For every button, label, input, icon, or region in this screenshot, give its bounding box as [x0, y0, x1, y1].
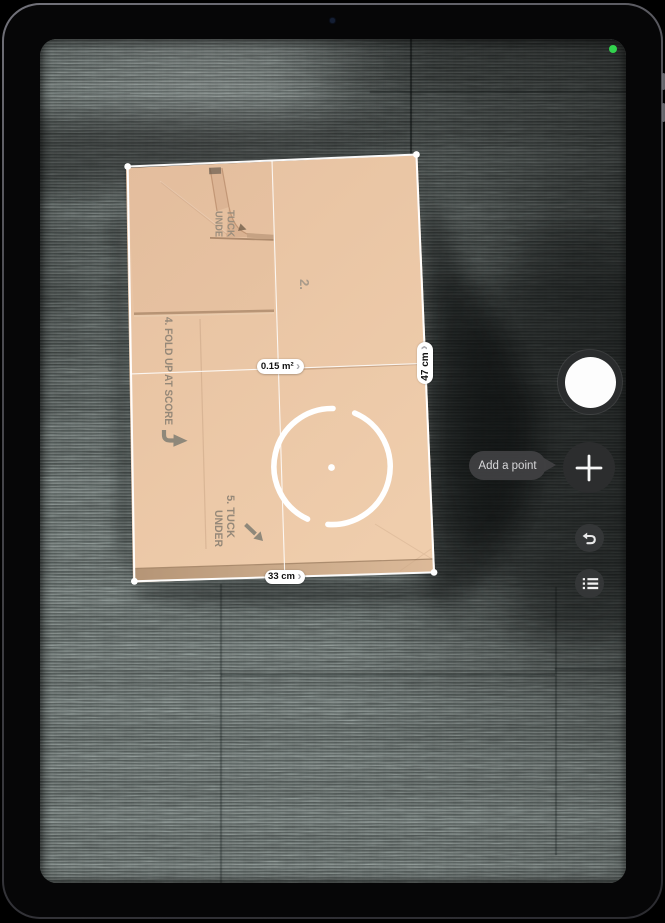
svg-text:UNDE: UNDE: [213, 211, 225, 237]
svg-text:2.: 2.: [297, 279, 312, 290]
svg-text:UNDER: UNDER: [212, 510, 224, 547]
svg-text:4. FOLD UP AT SCORE: 4. FOLD UP AT SCORE: [162, 317, 174, 425]
svg-text:TUCK: TUCK: [225, 210, 237, 237]
svg-text:5. TUCK: 5. TUCK: [224, 495, 236, 538]
